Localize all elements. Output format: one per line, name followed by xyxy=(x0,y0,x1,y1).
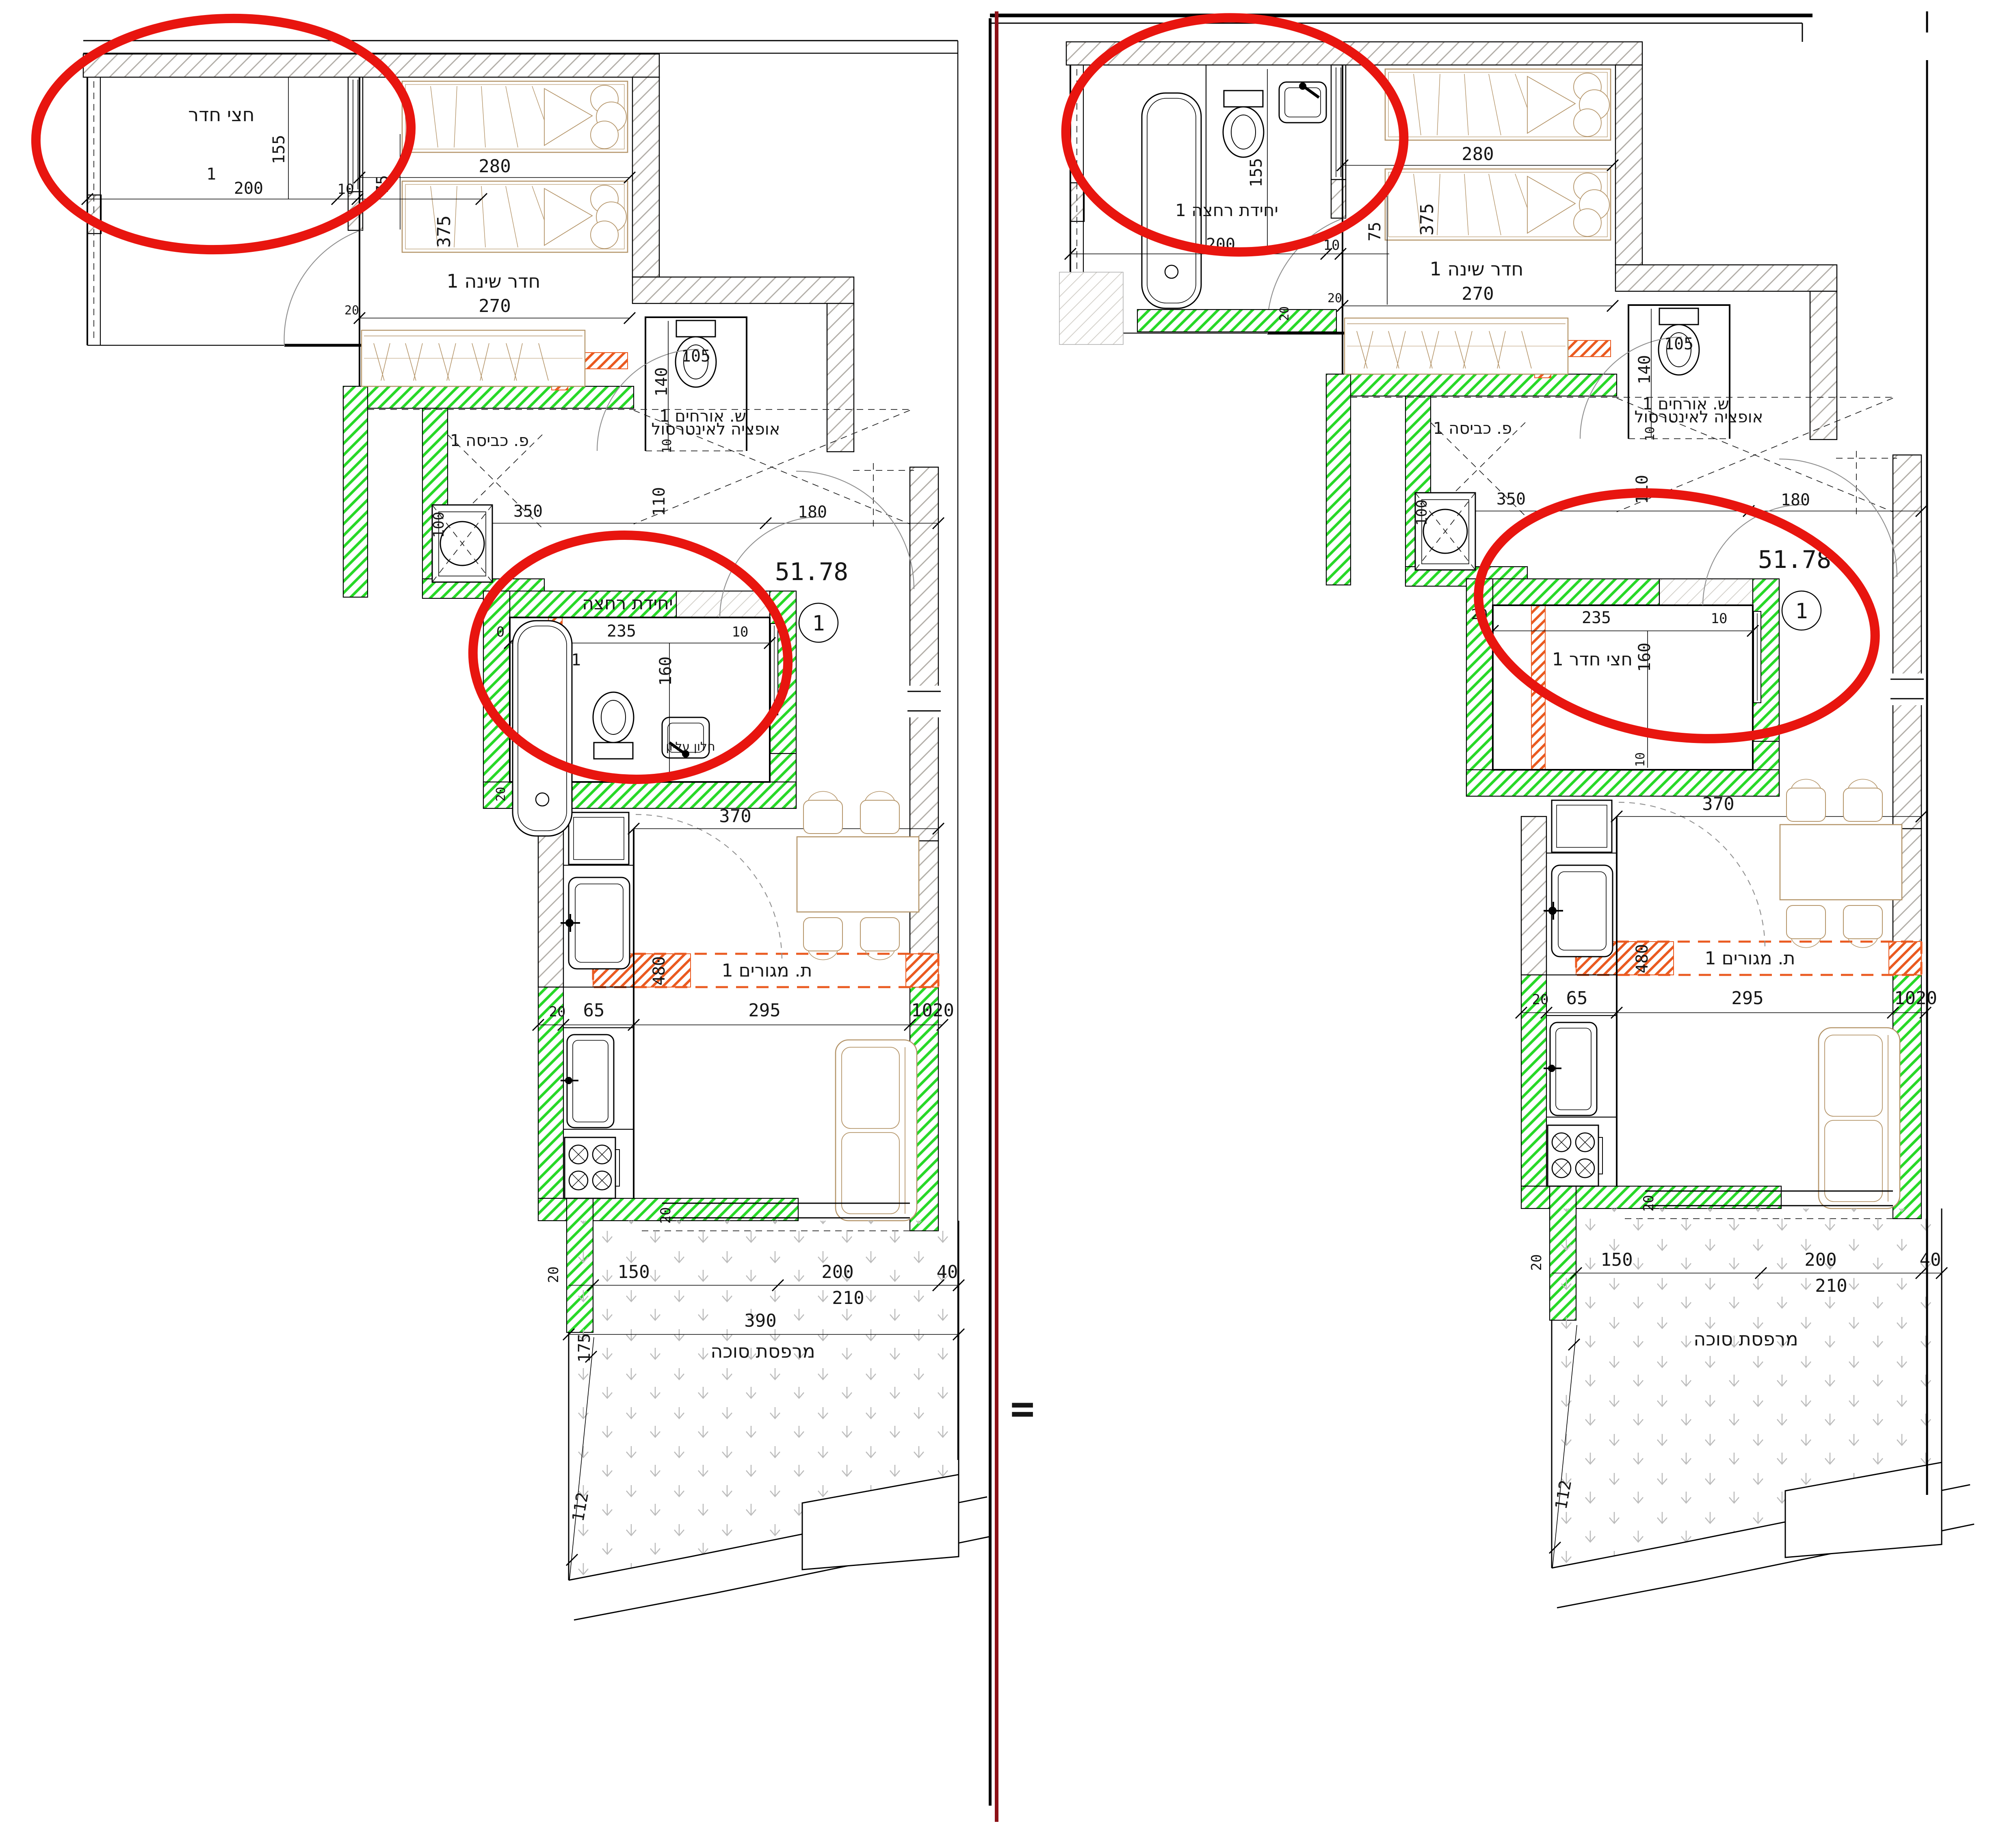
dim: 105 xyxy=(1664,335,1693,353)
room-label: ת. מגורים 1 xyxy=(1705,948,1795,969)
dim: 370 xyxy=(719,806,751,827)
room-label: חצי חדר 1 xyxy=(1552,649,1633,670)
dim: 370 xyxy=(1702,794,1734,814)
dim: 270 xyxy=(479,296,511,316)
dim: 140 xyxy=(1635,355,1654,384)
dim: 350 xyxy=(513,502,543,521)
room-label: מרפסת סוכה xyxy=(1693,1328,1798,1350)
room-label: יחידת רחצה xyxy=(582,593,673,614)
divider-red-line xyxy=(995,11,998,1822)
dim: 20 xyxy=(549,1004,566,1020)
room-label: חדר שינה 1 xyxy=(1429,258,1523,280)
room-label: יחידת רחצה 1 xyxy=(1175,200,1278,220)
dim: 175 xyxy=(575,1333,594,1362)
unit-number: 1 xyxy=(812,611,825,636)
dim: 10 xyxy=(338,181,354,197)
dim: 20 xyxy=(1532,992,1549,1008)
dim: 75 xyxy=(1366,222,1384,241)
dim: 20 xyxy=(494,787,508,801)
dim: 0 xyxy=(496,624,505,640)
dim: 480 xyxy=(650,956,669,985)
dim: 10 xyxy=(660,439,674,453)
dim: 1020 xyxy=(1894,988,1937,1009)
room-num: 1 xyxy=(206,165,216,184)
dim: 10 xyxy=(1633,752,1648,767)
floor-plan-comparison: חצי חדר 1 200 10 155 75 יחידת רחצה 1 235… xyxy=(0,0,2016,1830)
dim: 10 xyxy=(1643,427,1657,441)
dim: 150 xyxy=(617,1262,650,1282)
dim: 1020 xyxy=(911,1000,954,1021)
room-label: ת. מגורים 1 xyxy=(722,960,812,981)
dim: 20 xyxy=(1641,1195,1657,1212)
dim: 110 xyxy=(650,487,669,516)
room-label: מרפסת סוכה xyxy=(710,1340,815,1362)
dim: 210 xyxy=(832,1288,864,1308)
dim: 40 xyxy=(937,1262,958,1282)
comparison-divider: = xyxy=(989,11,1035,1822)
dim: 200 xyxy=(1804,1250,1836,1270)
dim: 180 xyxy=(798,503,827,522)
dim: 235 xyxy=(1582,609,1611,627)
dim: 350 xyxy=(1496,490,1526,509)
dim: 200 xyxy=(234,179,263,198)
dim: 155 xyxy=(270,135,288,164)
room-num: 1 xyxy=(571,651,581,669)
red-annotations xyxy=(30,9,1893,790)
window-note: חלון עליון xyxy=(666,740,715,754)
dim: 155 xyxy=(1247,158,1266,187)
dim: 10 xyxy=(732,624,749,640)
dim: 280 xyxy=(1462,144,1494,165)
dim: 375 xyxy=(1417,203,1438,235)
dim: 105 xyxy=(681,347,710,366)
dim: 20 xyxy=(658,1207,674,1224)
note: אופציה לאינטרסול xyxy=(1635,408,1763,427)
dim: 280 xyxy=(479,156,511,177)
dim: 210 xyxy=(1815,1276,1847,1296)
dim: 375 xyxy=(434,215,455,247)
dim: 295 xyxy=(748,1000,780,1021)
room-label: פ. כביסה 1 xyxy=(450,431,529,450)
unit-number: 1 xyxy=(1795,599,1808,624)
dim: 390 xyxy=(744,1310,776,1331)
dim: 20 xyxy=(1278,306,1292,321)
dim: 10 xyxy=(1711,611,1728,627)
equals-sign: = xyxy=(1010,1385,1035,1432)
dim: 140 xyxy=(652,367,671,396)
dim: 65 xyxy=(1566,988,1588,1009)
area-value: 51.78 xyxy=(775,558,849,586)
dim: 20 xyxy=(1529,1254,1545,1271)
room-label: חדר שינה 1 xyxy=(446,270,540,292)
dim: 150 xyxy=(1600,1250,1633,1270)
dim: 200 xyxy=(821,1262,853,1282)
right-floor-plan: יחידת רחצה 1 200 10 155 75 20 חצי חדר 1 … xyxy=(1059,42,1974,1608)
dim: 100 xyxy=(1414,499,1430,526)
dim: 160 xyxy=(656,656,675,686)
dim: 20 xyxy=(1327,291,1342,305)
dim: 180 xyxy=(1781,491,1810,509)
dim: 270 xyxy=(1462,284,1494,304)
dim: 295 xyxy=(1731,988,1763,1009)
dim: 235 xyxy=(607,622,636,641)
room-label: פ. כביסה 1 xyxy=(1433,419,1512,438)
dim: 20 xyxy=(546,1267,562,1283)
dim: 40 xyxy=(1920,1250,1941,1270)
dim: 20 xyxy=(344,303,359,318)
dim: 480 xyxy=(1633,944,1652,973)
left-floor-plan: חצי חדר 1 200 10 155 75 יחידת רחצה 1 235… xyxy=(82,41,991,1620)
dim: 65 xyxy=(583,1000,605,1021)
room-label: חצי חדר xyxy=(188,104,254,126)
dim: 100 xyxy=(431,511,447,538)
note: אופציה לאינטרסול xyxy=(652,420,780,439)
dim: 160 xyxy=(1635,643,1654,672)
